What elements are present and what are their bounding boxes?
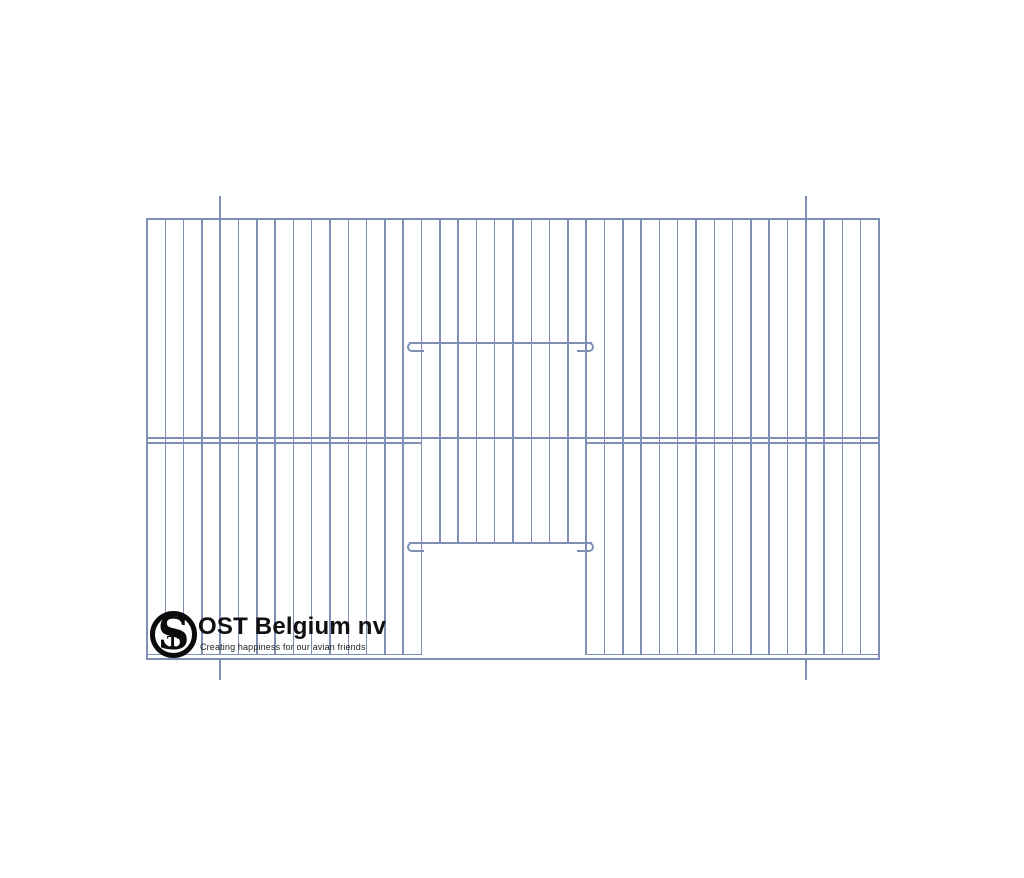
product-drawing-canvas: S T OST Belgium nv Creating happiness fo… — [0, 0, 1024, 878]
vertical-wire — [165, 218, 167, 655]
vertical-wire — [293, 218, 295, 655]
upper-door-slider-bar — [409, 342, 592, 344]
vertical-wire — [329, 218, 331, 655]
vertical-wire — [823, 218, 825, 655]
vertical-wire — [384, 218, 386, 655]
hanger-tick-bottom — [805, 660, 807, 680]
vertical-wire-above-door — [457, 218, 459, 544]
hanger-tick-top — [805, 196, 807, 219]
vertical-wire-above-door — [567, 218, 569, 544]
vertical-wire — [695, 218, 697, 655]
vertical-wire — [714, 218, 716, 655]
bottom-wire-rail-left — [146, 654, 421, 656]
cage-front-drawing — [0, 0, 1024, 878]
vertical-wire — [366, 218, 368, 655]
upper-door-slider-left-hook — [407, 342, 424, 352]
vertical-wire-above-door — [512, 218, 514, 544]
lower-door-slider-left-hook — [407, 542, 424, 552]
vertical-wire — [183, 218, 185, 655]
frame-right-rail — [878, 218, 880, 660]
vertical-wire — [768, 218, 770, 655]
vertical-wire — [860, 218, 862, 655]
vertical-wire — [677, 218, 679, 655]
vertical-wire — [238, 218, 240, 655]
vertical-wire — [585, 218, 587, 655]
vertical-wire — [787, 218, 789, 655]
vertical-wire — [604, 218, 606, 655]
vertical-wire-above-door — [494, 218, 496, 544]
vertical-wire — [274, 218, 276, 655]
vertical-wire — [622, 218, 624, 655]
vertical-wire-above-door — [531, 218, 533, 544]
vertical-wire-above-door — [549, 218, 551, 544]
vertical-wire — [256, 218, 258, 655]
vertical-wire — [842, 218, 844, 655]
vertical-wire — [201, 218, 203, 655]
vertical-wire — [421, 218, 423, 655]
vertical-wire — [311, 218, 313, 655]
hanger-tick-bottom — [219, 660, 221, 680]
middle-rail-lower-left — [146, 442, 421, 444]
vertical-wire-above-door — [439, 218, 441, 544]
frame-left-rail — [146, 218, 148, 660]
vertical-wire-above-door — [476, 218, 478, 544]
upper-door-slider-right-hook — [577, 342, 594, 352]
vertical-wire — [805, 218, 807, 655]
lower-door-slider-right-hook — [577, 542, 594, 552]
vertical-wire — [750, 218, 752, 655]
lower-door-slider-bar — [409, 542, 592, 544]
vertical-wire — [659, 218, 661, 655]
vertical-wire — [348, 218, 350, 655]
vertical-wire — [402, 218, 404, 655]
vertical-wire — [732, 218, 734, 655]
hanger-tick-top — [219, 196, 221, 219]
vertical-wire — [219, 218, 221, 655]
frame-bottom-rail — [146, 658, 880, 660]
vertical-wire — [640, 218, 642, 655]
